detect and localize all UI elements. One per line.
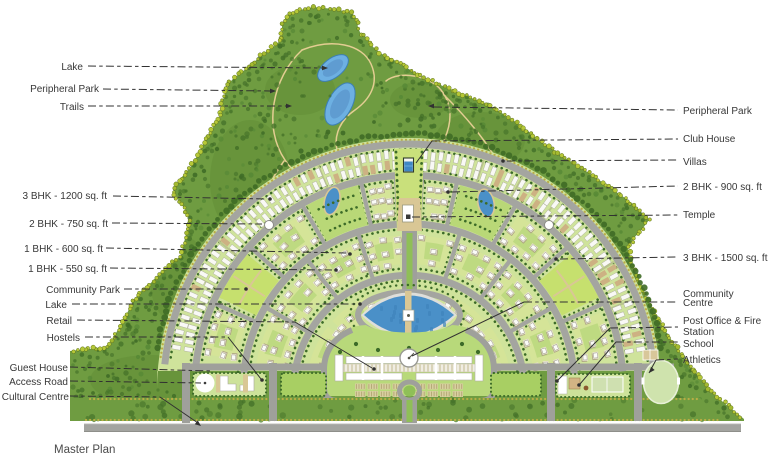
svg-text:Cultural Centre: Cultural Centre (2, 392, 70, 403)
svg-text:Guest House: Guest House (10, 363, 69, 374)
svg-text:1 BHK - 600 sq. ft: 1 BHK - 600 sq. ft (24, 244, 103, 255)
svg-text:Master Plan: Master Plan (54, 444, 115, 456)
svg-text:Station: Station (683, 327, 714, 338)
svg-text:School: School (683, 339, 714, 350)
svg-text:Access Road: Access Road (9, 377, 68, 388)
svg-text:Trails: Trails (60, 102, 84, 113)
svg-text:Lake: Lake (61, 62, 83, 73)
svg-text:1 BHK - 550 sq. ft: 1 BHK - 550 sq. ft (28, 264, 107, 275)
svg-text:Retail: Retail (46, 316, 72, 327)
svg-text:2 BHK - 750 sq. ft: 2 BHK - 750 sq. ft (29, 219, 108, 230)
svg-text:3 BHK - 1500 sq. ft: 3 BHK - 1500 sq. ft (683, 253, 768, 264)
svg-text:Peripheral Park: Peripheral Park (30, 84, 100, 95)
svg-text:Temple: Temple (683, 210, 716, 221)
svg-text:Community Park: Community Park (46, 285, 121, 296)
svg-text:3 BHK - 1200 sq. ft: 3 BHK - 1200 sq. ft (23, 191, 108, 202)
svg-text:2 BHK - 900 sq. ft: 2 BHK - 900 sq. ft (683, 182, 762, 193)
svg-text:Villas: Villas (683, 157, 707, 168)
svg-text:Lake: Lake (45, 300, 67, 311)
svg-text:Hostels: Hostels (47, 333, 80, 344)
svg-text:Post Office & Fire: Post Office & Fire (683, 316, 762, 327)
svg-text:Club House: Club House (683, 134, 736, 145)
svg-text:Peripheral Park: Peripheral Park (683, 106, 753, 117)
svg-text:Centre: Centre (683, 298, 713, 309)
svg-text:Athletics: Athletics (683, 355, 721, 366)
